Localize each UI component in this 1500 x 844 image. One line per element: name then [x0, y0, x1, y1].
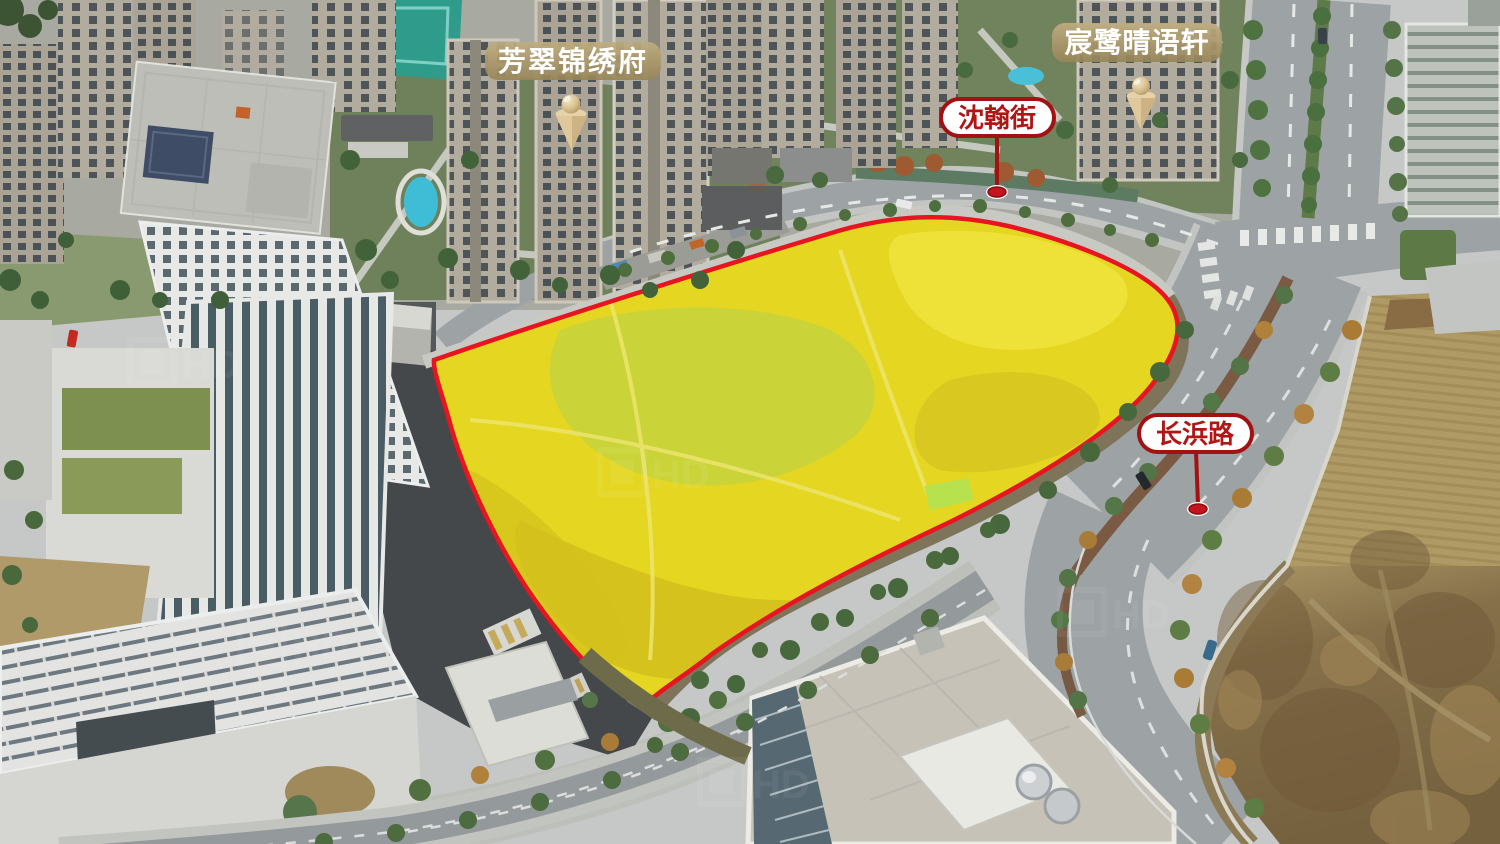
svg-text:HD: HD	[182, 343, 240, 387]
svg-text:宸鹭晴语轩: 宸鹭晴语轩	[1064, 26, 1209, 58]
svg-text:HD: HD	[292, 623, 350, 667]
svg-text:长浜路: 长浜路	[1156, 419, 1235, 449]
svg-text:HD: HD	[1112, 593, 1170, 637]
svg-text:HD: HD	[752, 763, 810, 807]
svg-text:沈翰街: 沈翰街	[958, 103, 1036, 133]
svg-text:芳翠锦绣府: 芳翠锦绣府	[498, 45, 648, 77]
svg-text:HD: HD	[652, 453, 710, 497]
